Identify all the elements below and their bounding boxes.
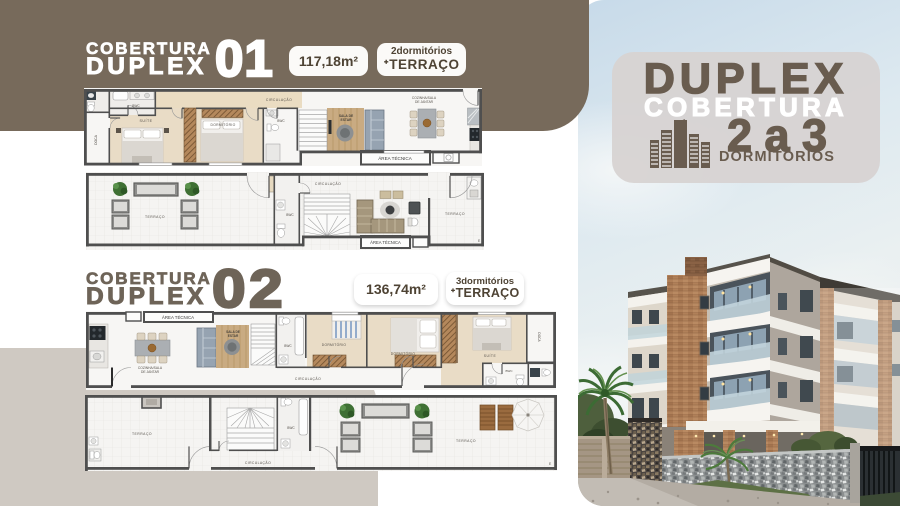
svg-text:BWC: BWC bbox=[277, 119, 285, 123]
svg-text:BWC: BWC bbox=[287, 426, 295, 430]
svg-text:DOCA: DOCA bbox=[94, 134, 98, 145]
svg-text:CIRCULAÇÃO: CIRCULAÇÃO bbox=[245, 460, 271, 465]
svg-text:ÁREA TÉCNICA: ÁREA TÉCNICA bbox=[370, 240, 401, 245]
svg-text:CIRCULAÇÃO: CIRCULAÇÃO bbox=[266, 97, 292, 102]
svg-text:BWC: BWC bbox=[284, 344, 292, 348]
svg-text:SUÍTE: SUÍTE bbox=[484, 354, 497, 358]
svg-text:ESTAR: ESTAR bbox=[228, 334, 239, 338]
svg-text:DE JANTAR: DE JANTAR bbox=[415, 100, 434, 104]
svg-text:BWC: BWC bbox=[132, 104, 140, 108]
svg-text:DORMITÓRIO: DORMITÓRIO bbox=[210, 122, 235, 127]
svg-text:DORMITÓRIO: DORMITÓRIO bbox=[391, 351, 416, 356]
svg-text:CIRCULAÇÃO: CIRCULAÇÃO bbox=[295, 376, 321, 381]
svg-text:BWC: BWC bbox=[506, 369, 514, 373]
svg-text:TERRAÇO: TERRAÇO bbox=[445, 212, 465, 216]
svg-text:BWC: BWC bbox=[286, 213, 294, 217]
svg-text:DOCA: DOCA bbox=[537, 332, 541, 342]
svg-text:SUÍTE: SUÍTE bbox=[139, 119, 152, 123]
svg-text:DE JANTAR: DE JANTAR bbox=[141, 370, 160, 374]
svg-text:ÁREA TÉCNICA: ÁREA TÉCNICA bbox=[162, 315, 194, 320]
svg-text:ÁREA TÉCNICA: ÁREA TÉCNICA bbox=[378, 155, 413, 161]
svg-text:TERRAÇO: TERRAÇO bbox=[456, 439, 476, 443]
svg-text:TERRAÇO: TERRAÇO bbox=[132, 432, 152, 436]
svg-text:TERRAÇO: TERRAÇO bbox=[145, 215, 165, 219]
svg-text:DORMITÓRIO: DORMITÓRIO bbox=[322, 342, 347, 347]
svg-text:ESTAR: ESTAR bbox=[341, 118, 353, 122]
svg-text:CIRCULAÇÃO: CIRCULAÇÃO bbox=[315, 181, 341, 186]
